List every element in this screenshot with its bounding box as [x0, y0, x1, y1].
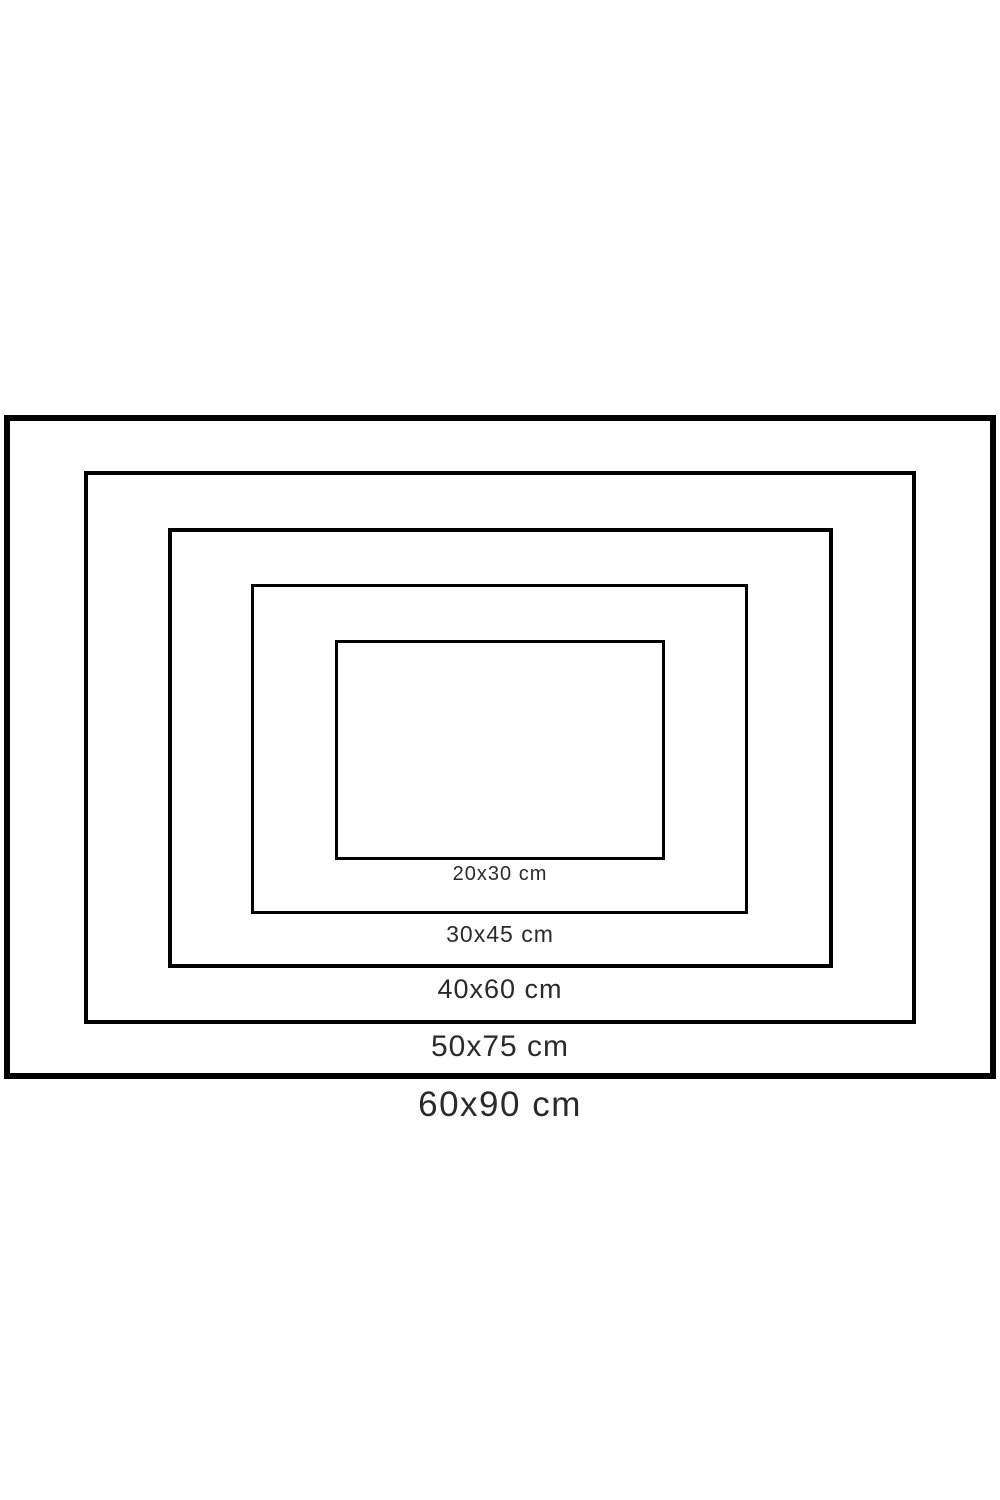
- size-rect-20x30: [335, 640, 665, 860]
- size-label-20x30: 20x30 cm: [0, 864, 1000, 884]
- size-label-40x60: 40x60 cm: [0, 976, 1000, 1003]
- print-size-comparison-diagram: 20x30 cm 30x45 cm 40x60 cm 50x75 cm 60x9…: [0, 0, 1000, 1500]
- size-label-60x90: 60x90 cm: [0, 1087, 1000, 1122]
- size-label-30x45: 30x45 cm: [0, 923, 1000, 946]
- size-label-50x75: 50x75 cm: [0, 1032, 1000, 1062]
